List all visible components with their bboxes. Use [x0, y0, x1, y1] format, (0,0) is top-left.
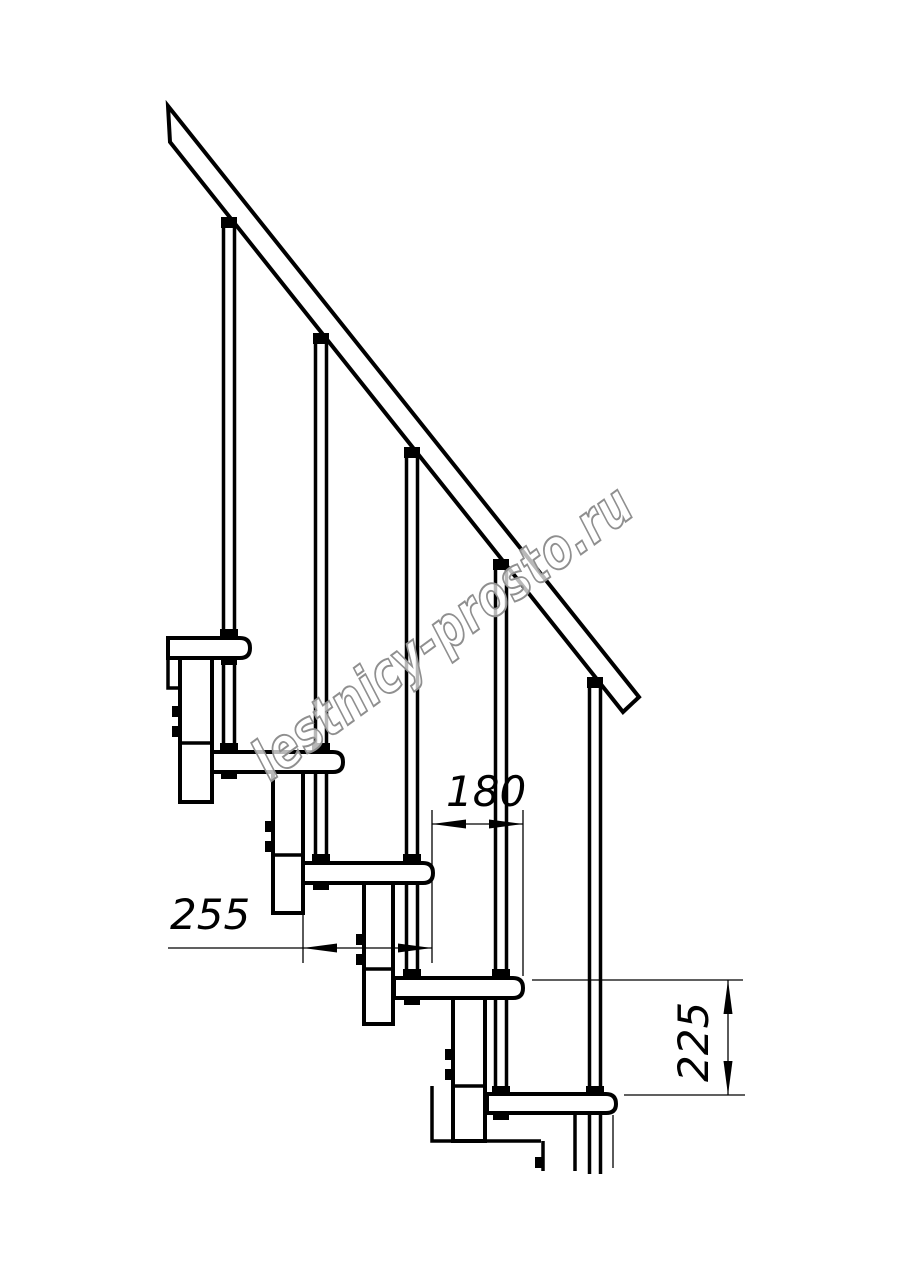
arrowhead-right — [398, 944, 432, 953]
column-tab — [172, 726, 181, 737]
baluster-2 — [312, 333, 330, 890]
baluster-top-cap — [404, 447, 420, 458]
arrowhead-up — [724, 980, 733, 1014]
baluster-top-cap — [221, 217, 237, 228]
baluster-top-cap — [587, 677, 603, 688]
column-tab — [445, 1069, 454, 1080]
dimension-225: 225 — [532, 980, 745, 1095]
tread-5 — [487, 1094, 616, 1113]
tread-3 — [303, 863, 433, 883]
column-tab — [356, 934, 365, 945]
arrowhead-left — [432, 820, 466, 829]
baluster-top-cap — [313, 333, 329, 344]
support-column-1 — [180, 658, 212, 802]
dimension-label-255: 255 — [170, 890, 250, 939]
column-tab — [172, 706, 181, 717]
step-module-5 — [487, 1094, 616, 1171]
tread-1 — [168, 638, 250, 658]
arrowhead-down — [724, 1061, 733, 1095]
dimension-180: 180 — [432, 767, 526, 976]
baluster-1 — [220, 217, 238, 779]
column-tab — [445, 1049, 454, 1060]
arrowhead-left — [303, 944, 337, 953]
column-tab — [265, 821, 274, 832]
tread-4 — [394, 978, 523, 998]
technical-drawing-page: 255 180 225 lestnicy-prosto.ru — [0, 0, 914, 1280]
balusters — [220, 217, 604, 1174]
support-column-3 — [364, 883, 393, 1024]
staircase-diagram: 255 180 225 lestnicy-prosto.ru — [0, 0, 914, 1280]
column-tab — [265, 841, 274, 852]
column-tab — [535, 1157, 544, 1168]
dimension-label-180: 180 — [446, 767, 526, 816]
baluster-4 — [492, 559, 510, 1120]
dimension-label-225: 225 — [669, 1002, 718, 1082]
support-column-4 — [453, 998, 485, 1141]
step-module-1 — [168, 638, 250, 802]
column-tab — [356, 954, 365, 965]
baluster-3 — [403, 447, 421, 1005]
